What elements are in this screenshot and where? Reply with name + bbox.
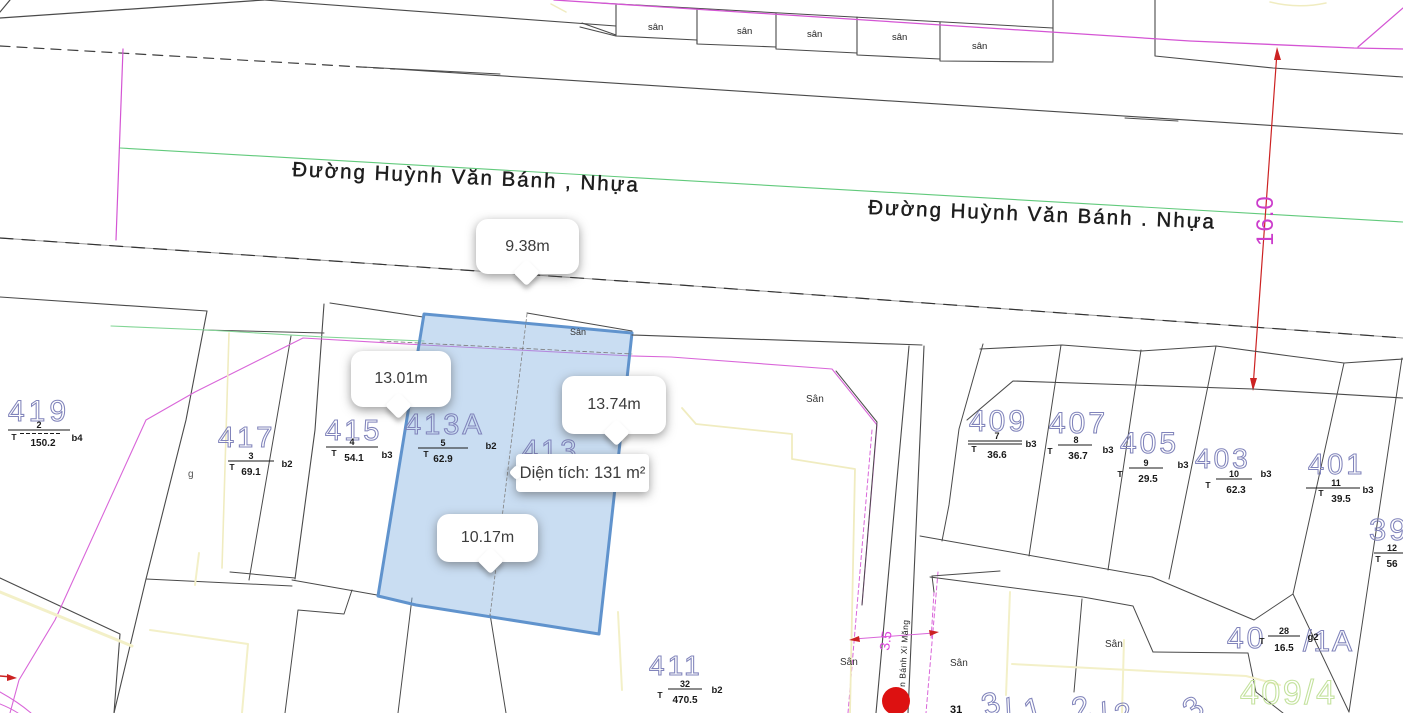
- svg-text:b2: b2: [711, 685, 722, 696]
- svg-text:16.5: 16.5: [1274, 643, 1294, 654]
- svg-text:sân: sân: [737, 26, 752, 37]
- svg-text:T: T: [229, 462, 235, 472]
- svg-text:9: 9: [1143, 458, 1148, 468]
- svg-text:T: T: [657, 690, 663, 700]
- svg-text:2: 2: [36, 420, 41, 430]
- svg-text:b2: b2: [281, 459, 292, 470]
- svg-text:5: 5: [440, 438, 445, 448]
- svg-text:b3: b3: [1102, 445, 1113, 456]
- svg-text:7: 7: [994, 431, 999, 441]
- svg-text:b4: b4: [71, 433, 83, 444]
- svg-text:/: /: [999, 692, 1018, 713]
- svg-text:g: g: [188, 469, 194, 480]
- svg-text:16.0: 16.0: [1252, 195, 1279, 246]
- svg-text:sân: sân: [972, 41, 987, 52]
- svg-text:Đường Huỳnh Văn Bánh , Nhựa: Đường Huỳnh Văn Bánh , Nhựa: [292, 158, 641, 197]
- svg-text:1: 1: [1020, 690, 1046, 713]
- svg-text:39: 39: [1369, 512, 1403, 547]
- svg-text:405: 405: [1120, 427, 1179, 460]
- svg-text:11: 11: [1331, 478, 1341, 488]
- svg-text:32: 32: [680, 679, 690, 689]
- svg-text:3: 3: [1176, 689, 1210, 713]
- svg-text:470.5: 470.5: [672, 695, 697, 706]
- svg-text:T: T: [331, 448, 337, 458]
- svg-text:54.1: 54.1: [344, 453, 364, 464]
- svg-text:b2: b2: [485, 441, 496, 452]
- svg-text:b3: b3: [1260, 469, 1271, 480]
- svg-text:b3: b3: [1025, 439, 1036, 450]
- svg-text:4: 4: [349, 437, 354, 447]
- svg-text:2: 2: [1111, 695, 1137, 713]
- svg-text:Sân: Sân: [1105, 639, 1123, 650]
- svg-text:62.3: 62.3: [1226, 485, 1246, 496]
- svg-text:T: T: [1375, 554, 1381, 564]
- svg-text:sân: sân: [648, 22, 663, 33]
- svg-text:sân: sân: [807, 29, 822, 40]
- svg-text:8: 8: [1073, 435, 1078, 445]
- svg-text:b3: b3: [1177, 460, 1188, 471]
- svg-text:b3: b3: [1362, 485, 1373, 496]
- svg-text:Sân: Sân: [840, 657, 858, 668]
- svg-text:Sân: Sân: [806, 394, 824, 405]
- svg-text:150.2: 150.2: [30, 438, 55, 449]
- svg-text:3: 3: [248, 451, 253, 461]
- svg-text:T: T: [1259, 636, 1265, 646]
- svg-text:403: 403: [1195, 443, 1251, 474]
- svg-text:28: 28: [1279, 626, 1289, 636]
- svg-text:T: T: [1047, 446, 1053, 456]
- svg-text:Sân: Sân: [570, 327, 586, 337]
- svg-text:36.6: 36.6: [987, 450, 1007, 461]
- svg-text:n Bánh Xi Măng: n Bánh Xi Măng: [897, 619, 911, 687]
- svg-text:T: T: [423, 449, 429, 459]
- svg-text:31: 31: [950, 704, 962, 713]
- svg-text:T: T: [1117, 469, 1123, 479]
- svg-text:62.9: 62.9: [433, 454, 453, 465]
- svg-text:417: 417: [218, 422, 275, 454]
- svg-text:12: 12: [1387, 543, 1397, 553]
- svg-text:b3: b3: [381, 450, 392, 461]
- svg-text:29.5: 29.5: [1138, 474, 1158, 485]
- svg-text:T: T: [971, 444, 977, 454]
- svg-text:36.7: 36.7: [1068, 451, 1088, 462]
- svg-text:401: 401: [1308, 449, 1365, 481]
- svg-text:2: 2: [1067, 688, 1094, 713]
- svg-text:T: T: [11, 432, 17, 442]
- svg-text:411: 411: [649, 650, 703, 681]
- svg-text:10: 10: [1229, 469, 1239, 479]
- svg-text:39.5: 39.5: [1331, 494, 1351, 505]
- svg-text:T: T: [1318, 488, 1324, 498]
- svg-text:T: T: [1205, 480, 1211, 490]
- svg-text:Sân: Sân: [950, 658, 968, 669]
- svg-text:56: 56: [1386, 559, 1398, 570]
- svg-text:413A: 413A: [405, 409, 485, 441]
- svg-text:g2: g2: [1307, 632, 1318, 643]
- svg-text:3.5: 3.5: [876, 630, 895, 652]
- svg-text:407: 407: [1049, 407, 1108, 440]
- svg-text:69.1: 69.1: [241, 467, 261, 478]
- svg-text:409/4: 409/4: [1240, 674, 1338, 712]
- svg-text:sân: sân: [892, 32, 907, 43]
